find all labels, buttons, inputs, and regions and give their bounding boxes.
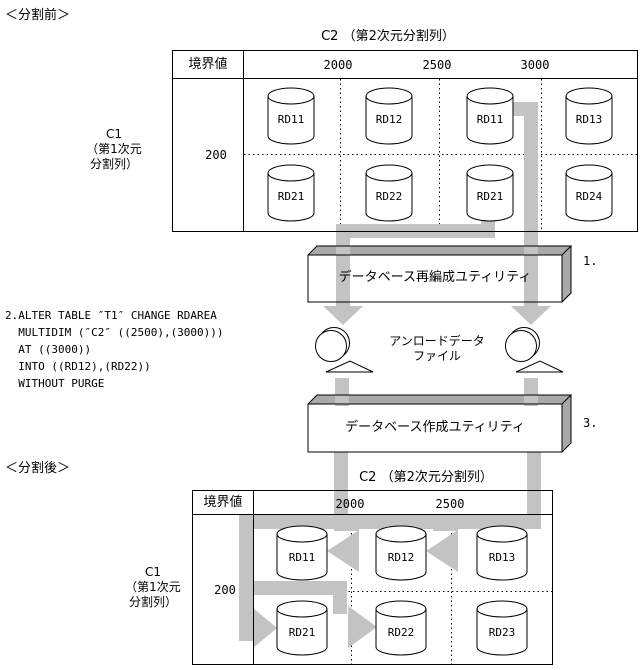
rdarea-label: RD22 <box>365 190 413 203</box>
rdarea-label: RD11 <box>267 113 315 126</box>
after-boundary-value-2000: 2000 <box>320 496 380 512</box>
rdarea-label: RD13 <box>476 551 528 564</box>
create-utility-label: データベース作成ユティリティ <box>308 420 562 436</box>
after-boundary-col-divider <box>253 490 254 665</box>
rdarea-label: RD22 <box>375 626 427 639</box>
sql-line: AT ((3000)) <box>5 341 224 358</box>
alter-table-sql: 2.ALTER TABLE ″T1″ CHANGE RDAREA MULTIDI… <box>5 307 224 392</box>
rdarea-cylinder: RD23 <box>476 600 528 656</box>
reorg-box-right-face <box>562 246 571 302</box>
rdarea-label: RD11 <box>466 113 514 126</box>
before-boundary-value-2000: 2000 <box>308 57 368 73</box>
before-c1-axis-label: C1 （第1次元 分割列） <box>64 127 164 172</box>
rdarea-cylinder: RD11 <box>466 87 514 145</box>
rdarea-cylinder: RD22 <box>365 164 413 222</box>
tape-tail <box>326 361 373 372</box>
rdarea-label: RD13 <box>565 113 613 126</box>
tape-file-icon-right <box>506 328 564 373</box>
after-header-divider <box>192 514 553 515</box>
create-box-right-face <box>562 395 571 452</box>
tape-reel-front <box>316 331 347 362</box>
after-c1-axis-label: C1 （第1次元 分割列） <box>103 565 203 610</box>
tape-tail <box>516 361 563 372</box>
rdarea-label: RD24 <box>565 190 613 203</box>
before-header-divider <box>172 78 638 79</box>
rdarea-label: RD21 <box>267 190 315 203</box>
rdarea-label: RD12 <box>375 551 427 564</box>
reorg-utility-label: データベース再編成ユティリティ <box>308 270 562 286</box>
rdarea-cylinder: RD22 <box>375 600 427 656</box>
rdarea-cylinder: RD21 <box>466 164 514 222</box>
before-section-label: ＜分割前＞ <box>5 8 70 24</box>
unload-file-label: アンロードデータ ファイル <box>380 334 494 364</box>
after-row-boundary-200: 200 <box>195 582 255 598</box>
rdarea-label: RD21 <box>466 190 514 203</box>
partition-diagram: RD11 RD12 RD11 RD13 RD21 RD22 RD21 RD24 … <box>0 0 643 670</box>
rdarea-cylinder: RD21 <box>267 164 315 222</box>
before-boundary-value-2500: 2500 <box>407 57 467 73</box>
step3-label: 3. <box>583 415 597 431</box>
rdarea-cylinder: RD21 <box>276 600 328 656</box>
sql-line: INTO ((RD12),(RD22)) <box>5 358 224 375</box>
rdarea-cylinder: RD12 <box>365 87 413 145</box>
rdarea-cylinder: RD11 <box>276 525 328 581</box>
before-row-boundary-200: 200 <box>186 147 246 163</box>
tape-file-icon-left <box>316 328 374 373</box>
rdarea-cylinder: RD12 <box>375 525 427 581</box>
sql-line: MULTIDIM (″C2″ ((2500),(3000))) <box>5 324 224 341</box>
rdarea-cylinder: RD13 <box>476 525 528 581</box>
after-section-label: ＜分割後＞ <box>5 461 70 477</box>
rdarea-label: RD11 <box>276 551 328 564</box>
before-boundary-header: 境界値 <box>173 57 243 73</box>
before-boundary-col-divider <box>243 50 244 232</box>
after-c2-axis-label: C2 （第2次元分割列） <box>326 470 526 486</box>
before-boundary-value-3000: 3000 <box>505 57 565 73</box>
arrowhead-unload-left <box>323 306 363 325</box>
rdarea-label: RD12 <box>365 113 413 126</box>
tape-reel-front <box>506 331 537 362</box>
rdarea-cylinder: RD24 <box>565 164 613 222</box>
rdarea-cylinder: RD13 <box>565 87 613 145</box>
arrowhead-unload-right <box>511 306 551 325</box>
after-boundary-value-2500: 2500 <box>420 496 480 512</box>
step1-label: 1. <box>583 253 597 269</box>
sql-line: 2.ALTER TABLE ″T1″ CHANGE RDAREA <box>5 307 224 324</box>
rdarea-label: RD21 <box>276 626 328 639</box>
rdarea-label: RD23 <box>476 626 528 639</box>
before-c2-axis-label: C2 （第2次元分割列） <box>288 29 488 45</box>
rdarea-cylinder: RD11 <box>267 87 315 145</box>
after-boundary-header: 境界値 <box>193 495 253 511</box>
sql-line: WITHOUT PURGE <box>5 375 224 392</box>
